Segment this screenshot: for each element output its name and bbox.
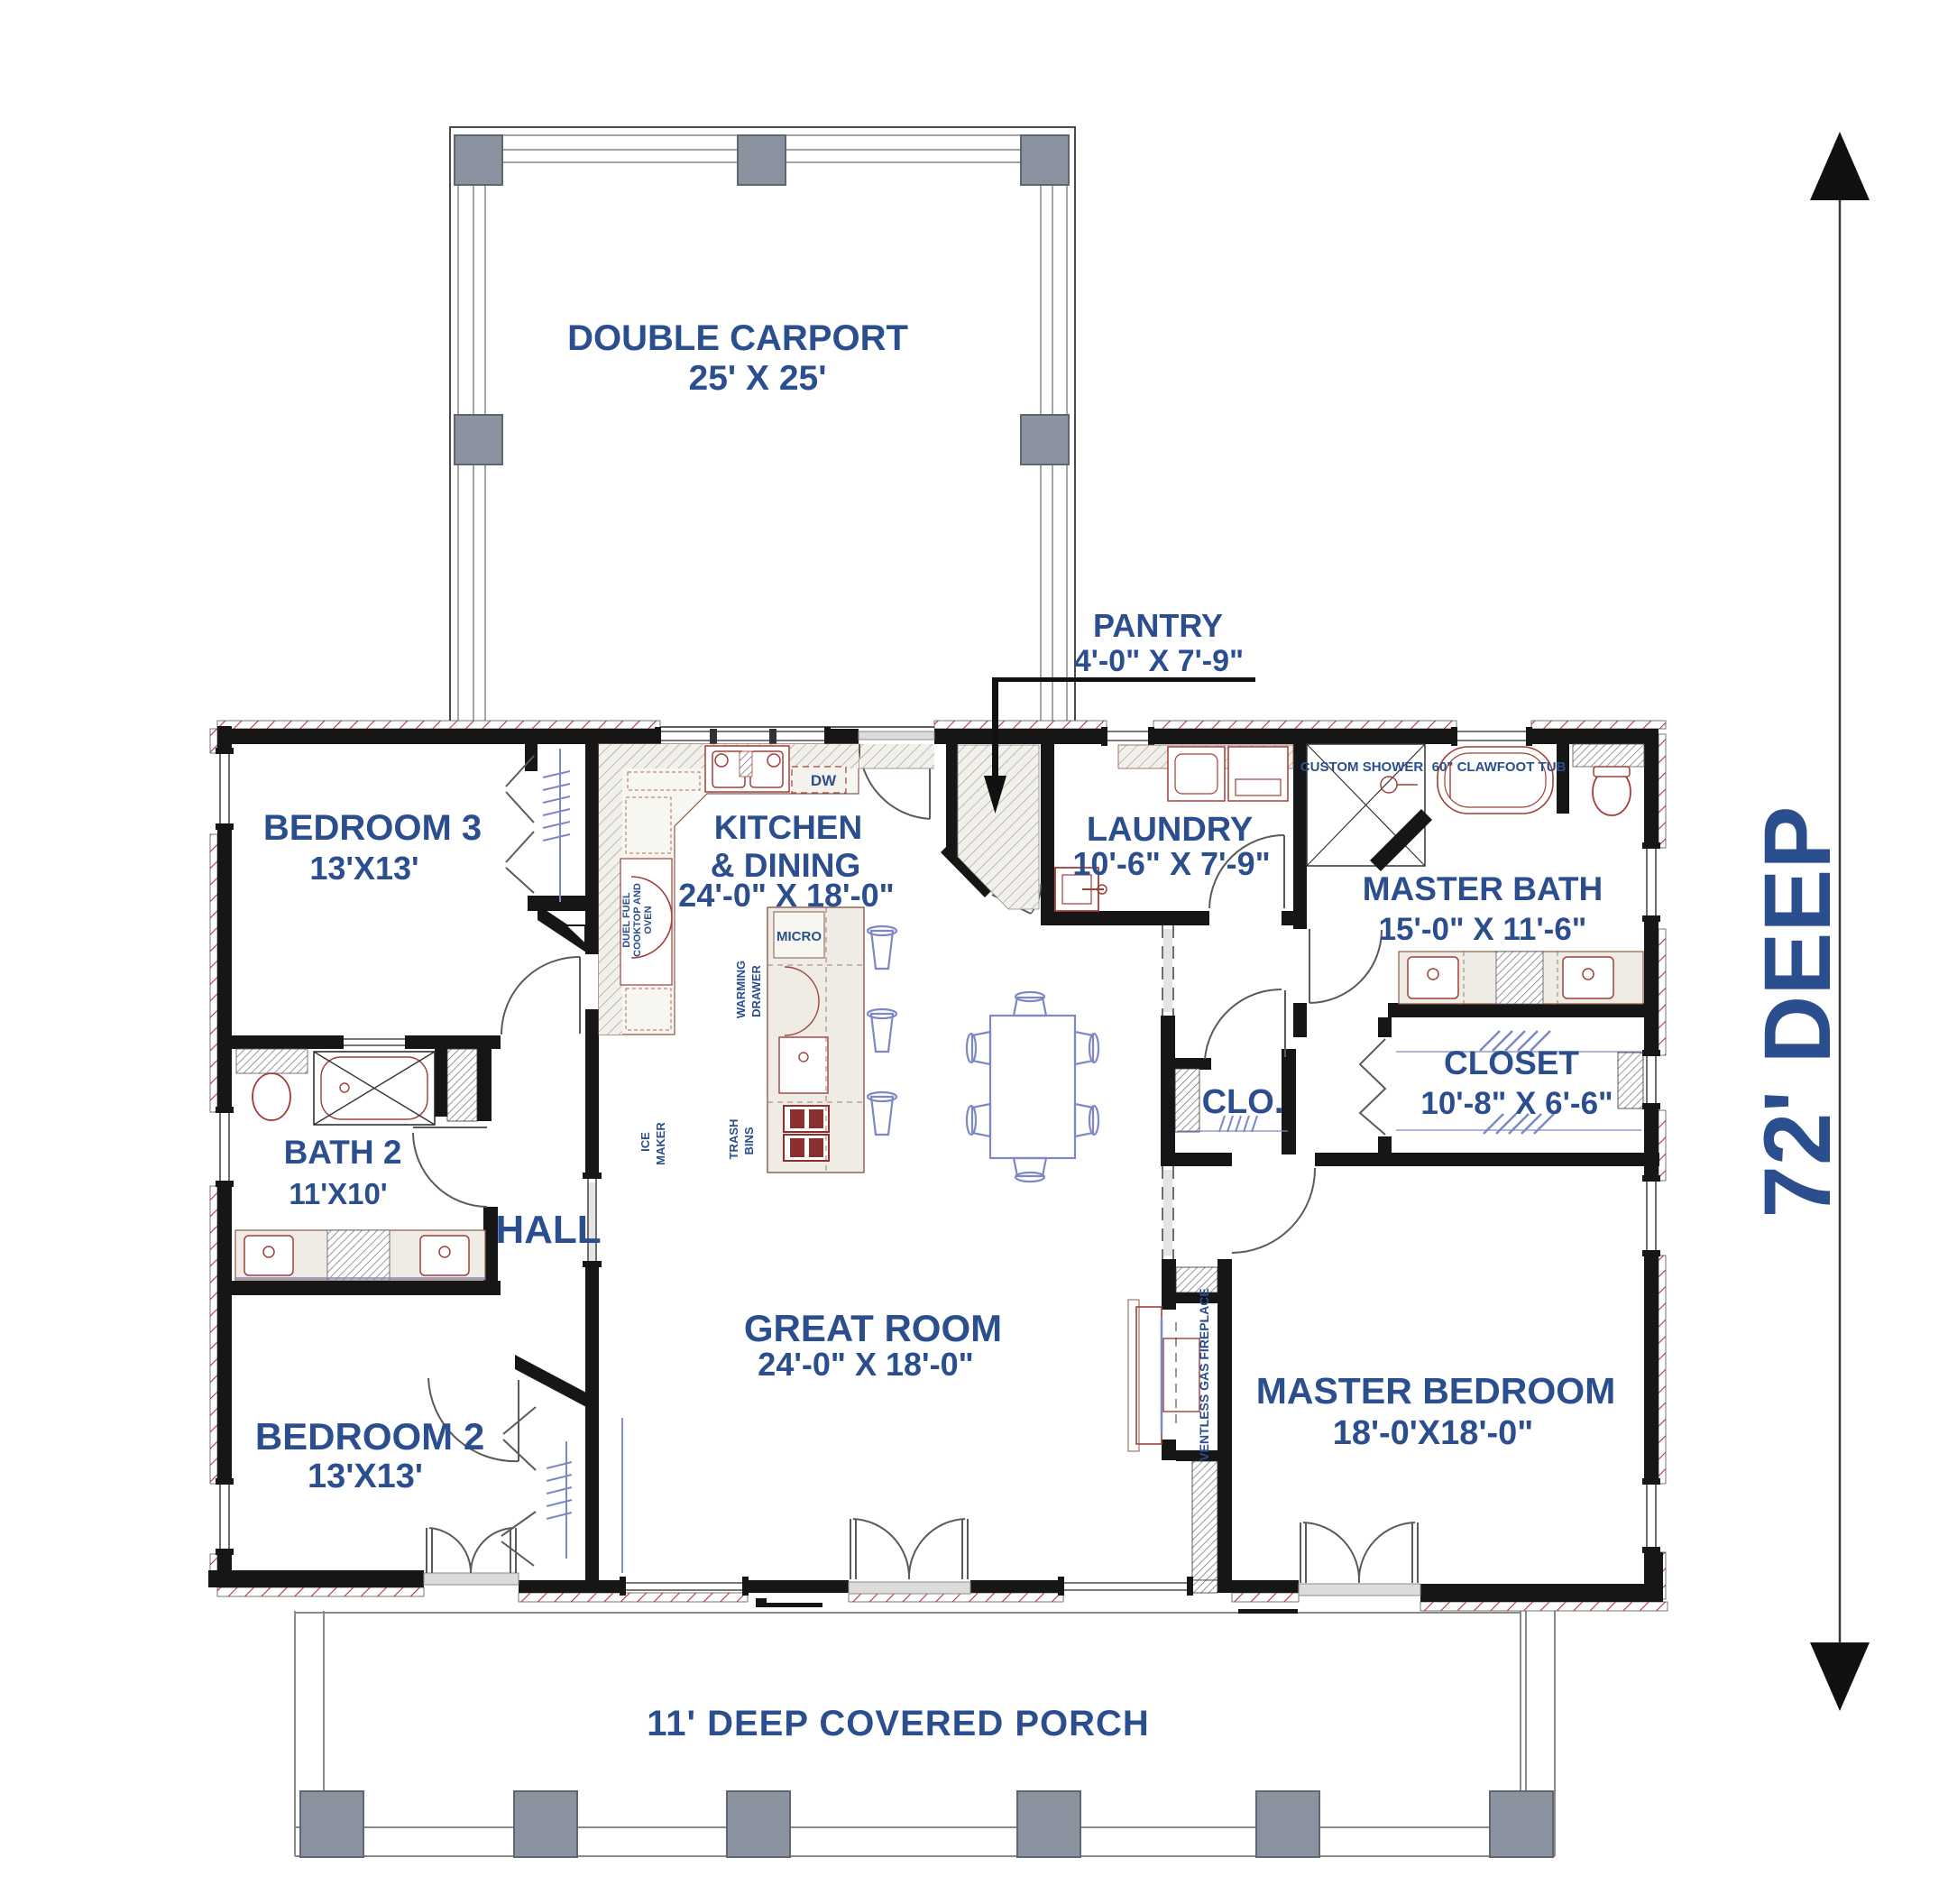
svg-text:CLO.: CLO. bbox=[1202, 1083, 1284, 1121]
svg-text:BEDROOM 2: BEDROOM 2 bbox=[255, 1415, 484, 1458]
svg-text:10'-8" X 6'-6": 10'-8" X 6'-6" bbox=[1420, 1086, 1613, 1121]
svg-text:CUSTOM SHOWER: CUSTOM SHOWER bbox=[1300, 759, 1424, 775]
svg-text:DUEL FUEL: DUEL FUEL bbox=[621, 892, 632, 948]
svg-text:MAKER: MAKER bbox=[654, 1122, 667, 1165]
svg-text:72' DEEP: 72' DEEP bbox=[1745, 806, 1851, 1219]
svg-text:13'X13': 13'X13' bbox=[308, 1458, 423, 1495]
svg-text:ICE: ICE bbox=[639, 1132, 652, 1152]
svg-text:TRASH: TRASH bbox=[727, 1119, 740, 1160]
svg-text:60" CLAWFOOT TUB: 60" CLAWFOOT TUB bbox=[1432, 759, 1567, 775]
svg-text:KITCHEN: KITCHEN bbox=[714, 809, 862, 846]
svg-text:18'-0'X18'-0": 18'-0'X18'-0" bbox=[1333, 1414, 1534, 1452]
svg-text:24'-0" X 18'-0": 24'-0" X 18'-0" bbox=[678, 877, 894, 914]
svg-text:24'-0" X 18'-0": 24'-0" X 18'-0" bbox=[758, 1346, 973, 1383]
svg-text:4'-0" X 7'-9": 4'-0" X 7'-9" bbox=[1074, 644, 1244, 678]
svg-text:MASTER BEDROOM: MASTER BEDROOM bbox=[1256, 1370, 1616, 1412]
svg-text:11' DEEP COVERED PORCH: 11' DEEP COVERED PORCH bbox=[647, 1704, 1150, 1743]
svg-text:10'-6" X 7'-9": 10'-6" X 7'-9" bbox=[1072, 845, 1270, 882]
svg-text:DRAWER: DRAWER bbox=[749, 965, 763, 1017]
svg-text:PANTRY: PANTRY bbox=[1093, 607, 1223, 644]
svg-text:MASTER BATH: MASTER BATH bbox=[1363, 870, 1603, 907]
svg-text:GREAT ROOM: GREAT ROOM bbox=[744, 1307, 1002, 1349]
svg-text:LAUNDRY: LAUNDRY bbox=[1087, 811, 1253, 849]
svg-text:CLOSET: CLOSET bbox=[1444, 1044, 1579, 1081]
svg-text:BINS: BINS bbox=[742, 1127, 756, 1154]
svg-text:11'X10': 11'X10' bbox=[289, 1177, 387, 1210]
svg-text:MICRO: MICRO bbox=[776, 929, 822, 944]
svg-text:15'-0" X 11'-6": 15'-0" X 11'-6" bbox=[1379, 912, 1587, 947]
svg-text:13'X13': 13'X13' bbox=[309, 850, 418, 887]
svg-text:COOKTOP AND: COOKTOP AND bbox=[632, 883, 643, 957]
svg-text:HALL: HALL bbox=[495, 1208, 601, 1252]
svg-text:OVEN: OVEN bbox=[643, 906, 654, 934]
svg-text:25' X 25': 25' X 25' bbox=[689, 359, 827, 398]
svg-text:BEDROOM 3: BEDROOM 3 bbox=[263, 808, 482, 848]
svg-text:DOUBLE CARPORT: DOUBLE CARPORT bbox=[567, 318, 908, 358]
svg-text:VENTLESS GAS FIREPLACE: VENTLESS GAS FIREPLACE bbox=[1197, 1288, 1211, 1460]
svg-text:DW: DW bbox=[811, 772, 837, 789]
svg-text:WARMING: WARMING bbox=[734, 961, 748, 1018]
svg-text:BATH 2: BATH 2 bbox=[284, 1134, 402, 1171]
